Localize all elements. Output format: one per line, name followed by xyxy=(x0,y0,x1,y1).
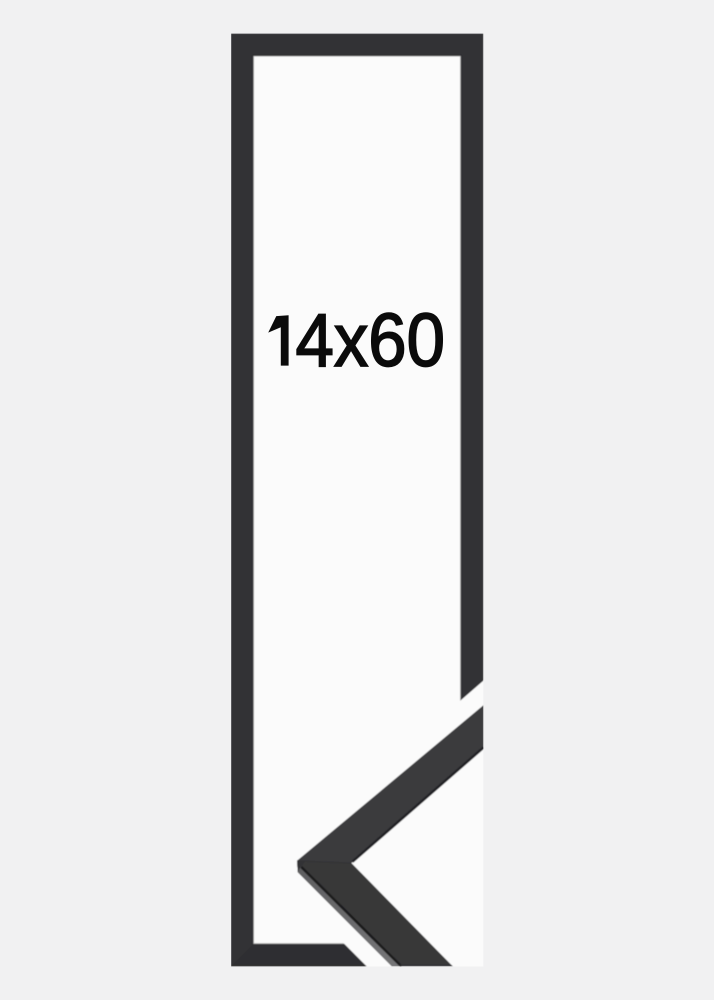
svg-text:4x60: 4x60 xyxy=(296,299,445,383)
